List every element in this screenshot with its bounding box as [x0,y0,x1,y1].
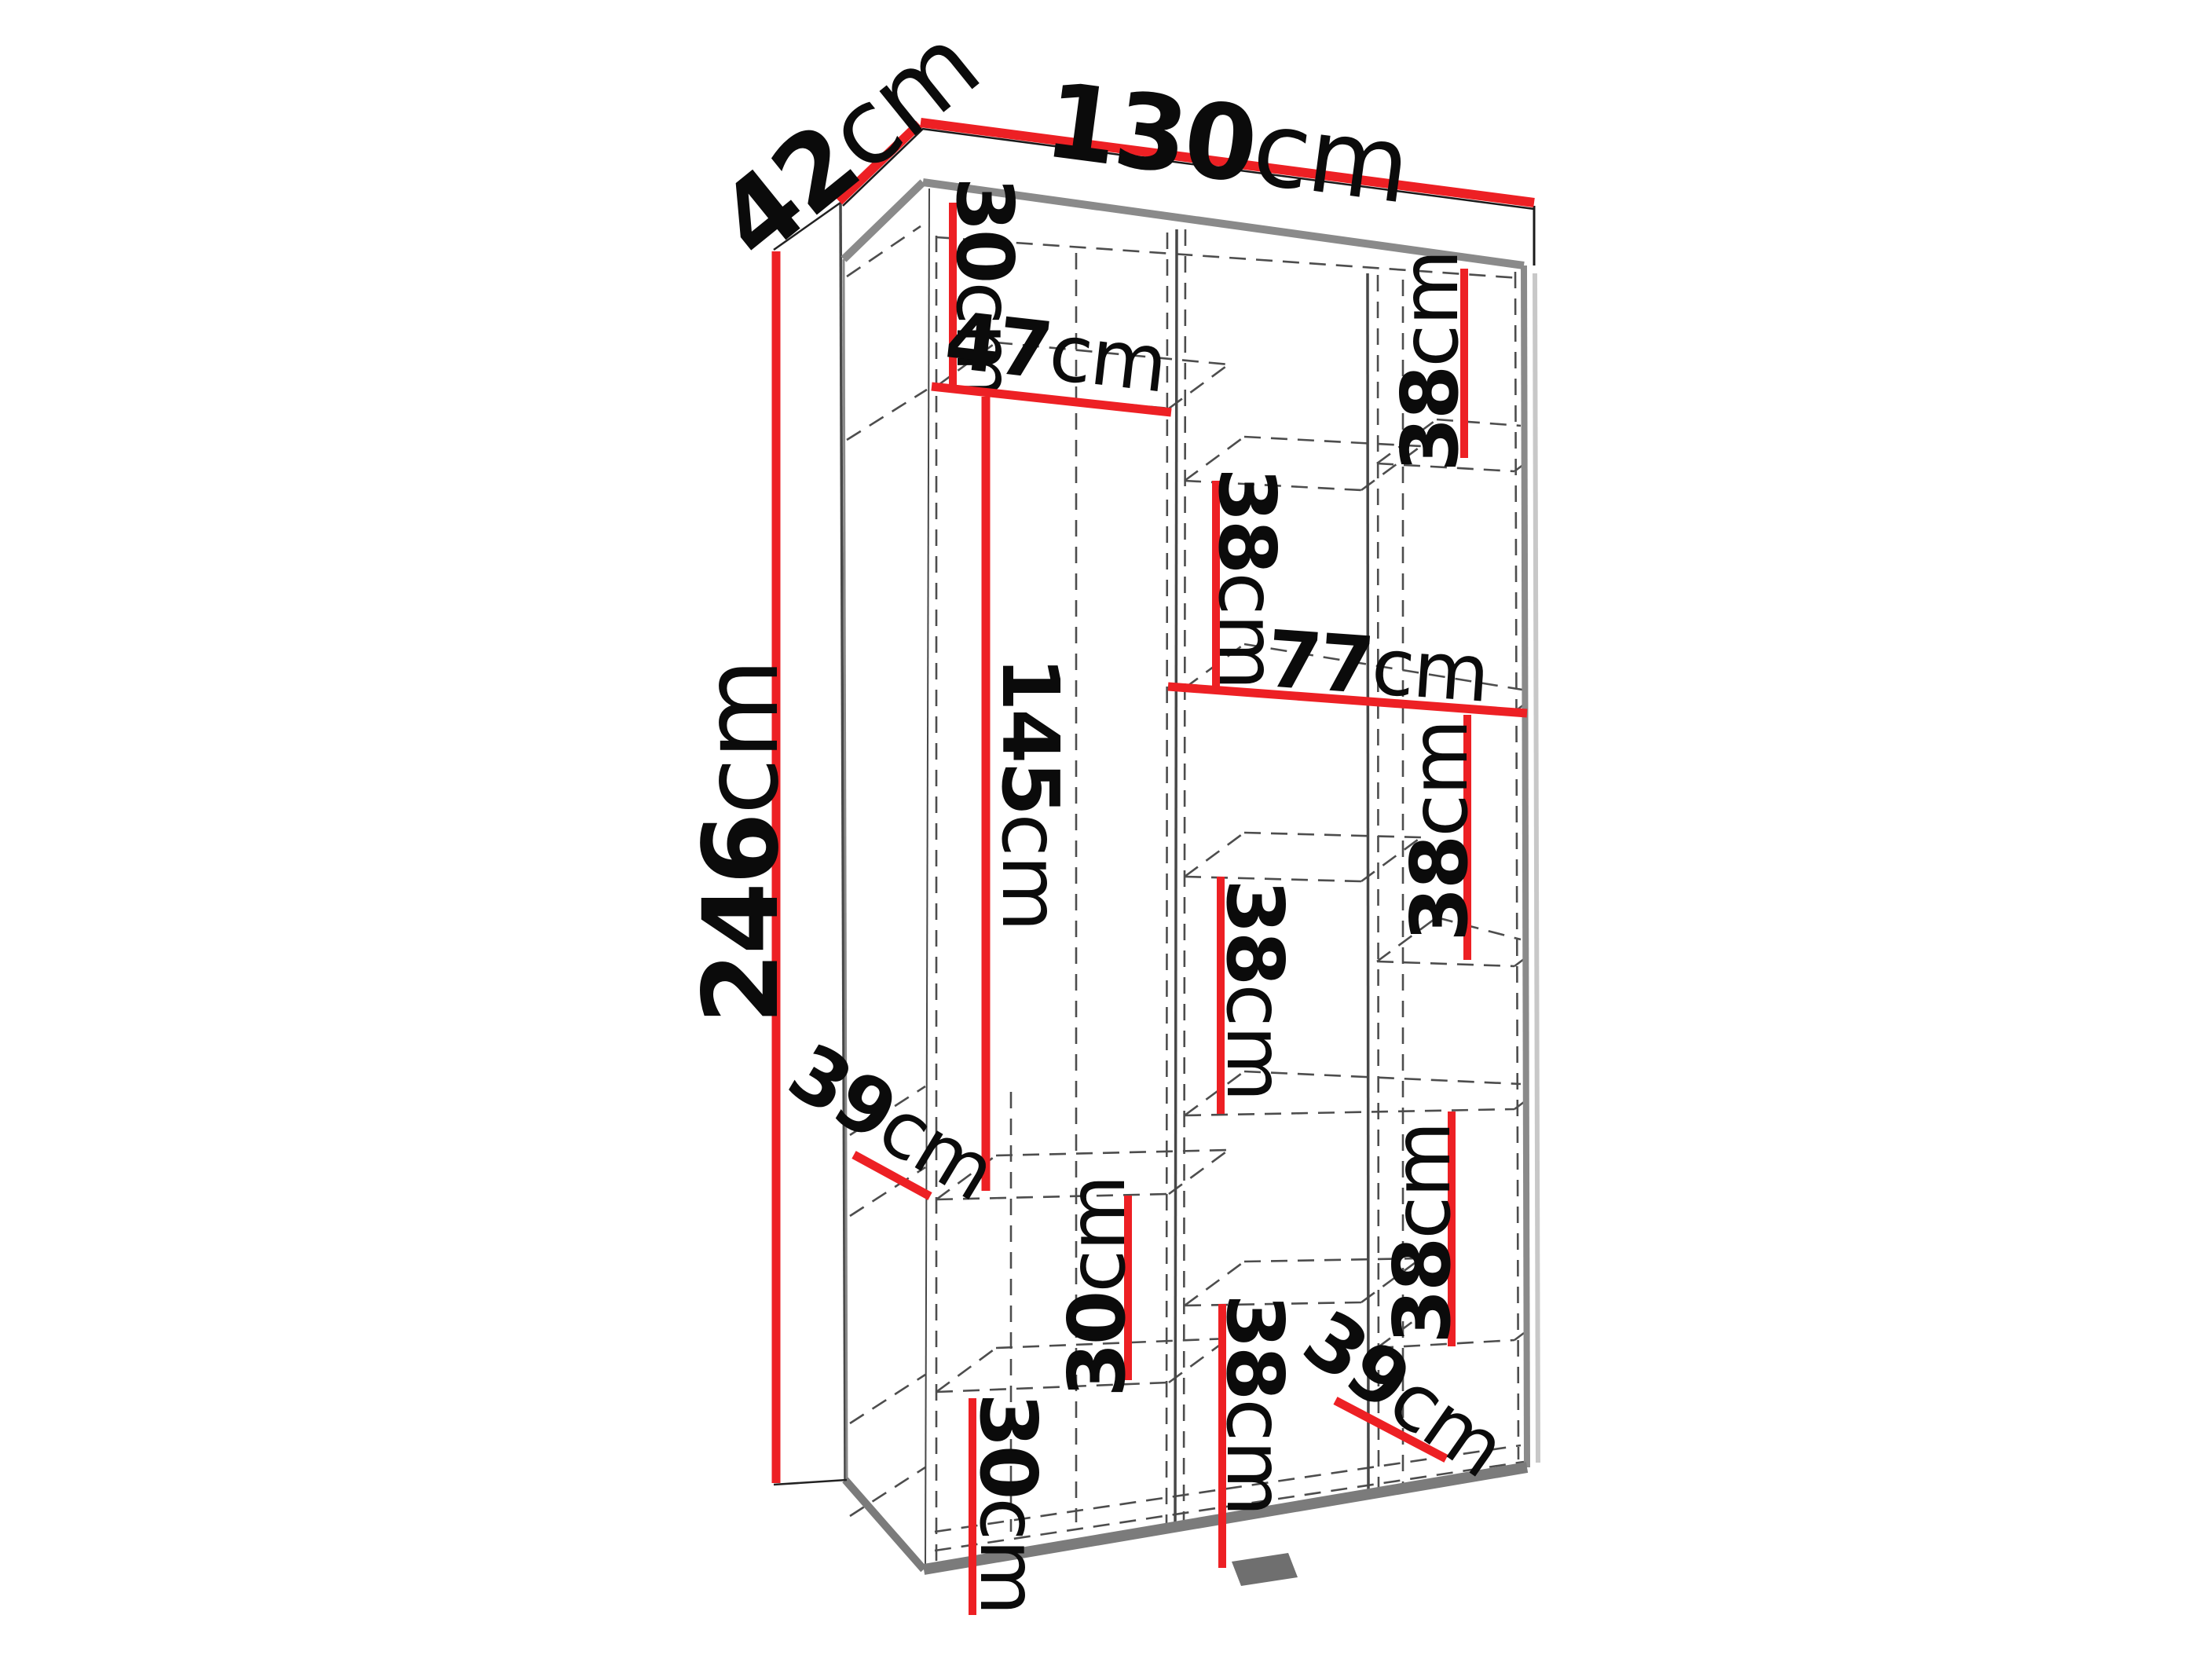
dimension-label-mid-38-c: 38cm [1210,1294,1302,1515]
right-edge-shadow [1535,273,1538,1463]
section-divider [1175,229,1177,1532]
dimension-label-right-38-c: 38cm [1376,1122,1468,1344]
dimension-label-left-30-lower: 30cm [963,1393,1055,1614]
inner-left-edge [925,189,929,1568]
wardrobe-dimension-diagram: 42cm130cm246cm30cm47cm145cm38cm38cm77cm3… [0,0,2212,1659]
dimension-label-mid-38-b: 38cm [1210,879,1302,1101]
extension-tick-1 [774,1480,847,1485]
dimension-label-left-depth-39: 39cm [774,1025,1011,1218]
diagram-canvas: 42cm130cm246cm30cm47cm145cm38cm38cm77cm3… [0,0,2212,1659]
side-panel-dashed-lines [847,226,927,1516]
dimension-label-right-38-a: 38cm [1384,251,1476,472]
right-outer-edge [1524,266,1527,1467]
dimension-label-hanging-145: 145cm [985,657,1077,930]
dimension-label-height-246: 246cm [681,660,802,1024]
dimension-label-right-width-77: 77cm [1264,613,1491,720]
dimension-label-right-38-b: 38cm [1393,720,1485,942]
center-foot [1232,1553,1298,1586]
dimension-label-left-30-upper: 30cm [1051,1176,1143,1397]
